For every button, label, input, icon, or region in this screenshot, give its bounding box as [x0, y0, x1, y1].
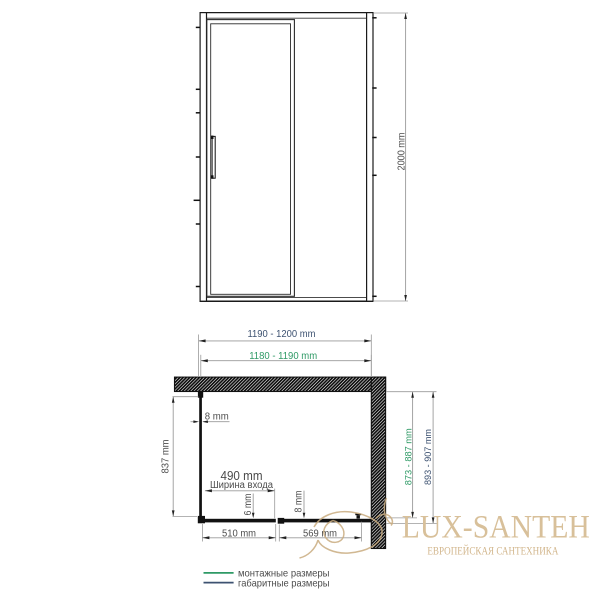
svg-text:893 - 907 mm: 893 - 907 mm	[423, 429, 434, 485]
svg-text:837 mm: 837 mm	[160, 440, 171, 474]
svg-text:873 - 887 mm: 873 - 887 mm	[404, 428, 415, 485]
svg-text:510 mm: 510 mm	[222, 528, 256, 539]
svg-text:габаритные размеры: габаритные размеры	[238, 577, 330, 589]
svg-text:1190 - 1200 mm: 1190 - 1200 mm	[248, 329, 316, 340]
svg-text:8 mm: 8 mm	[205, 412, 229, 423]
svg-text:8 mm: 8 mm	[294, 491, 305, 513]
svg-text:LUX-SANTEH: LUX-SANTEH	[402, 510, 590, 546]
svg-text:569 mm: 569 mm	[303, 528, 337, 539]
svg-text:6 mm: 6 mm	[243, 494, 254, 516]
svg-text:Ширина входа: Ширина входа	[210, 480, 273, 491]
svg-text:2000 mm: 2000 mm	[397, 133, 408, 171]
svg-text:ЕВРОПЕЙСКАЯ САНТЕХНИКА: ЕВРОПЕЙСКАЯ САНТЕХНИКА	[427, 544, 558, 558]
svg-text:1180 - 1190 mm: 1180 - 1190 mm	[249, 351, 317, 362]
